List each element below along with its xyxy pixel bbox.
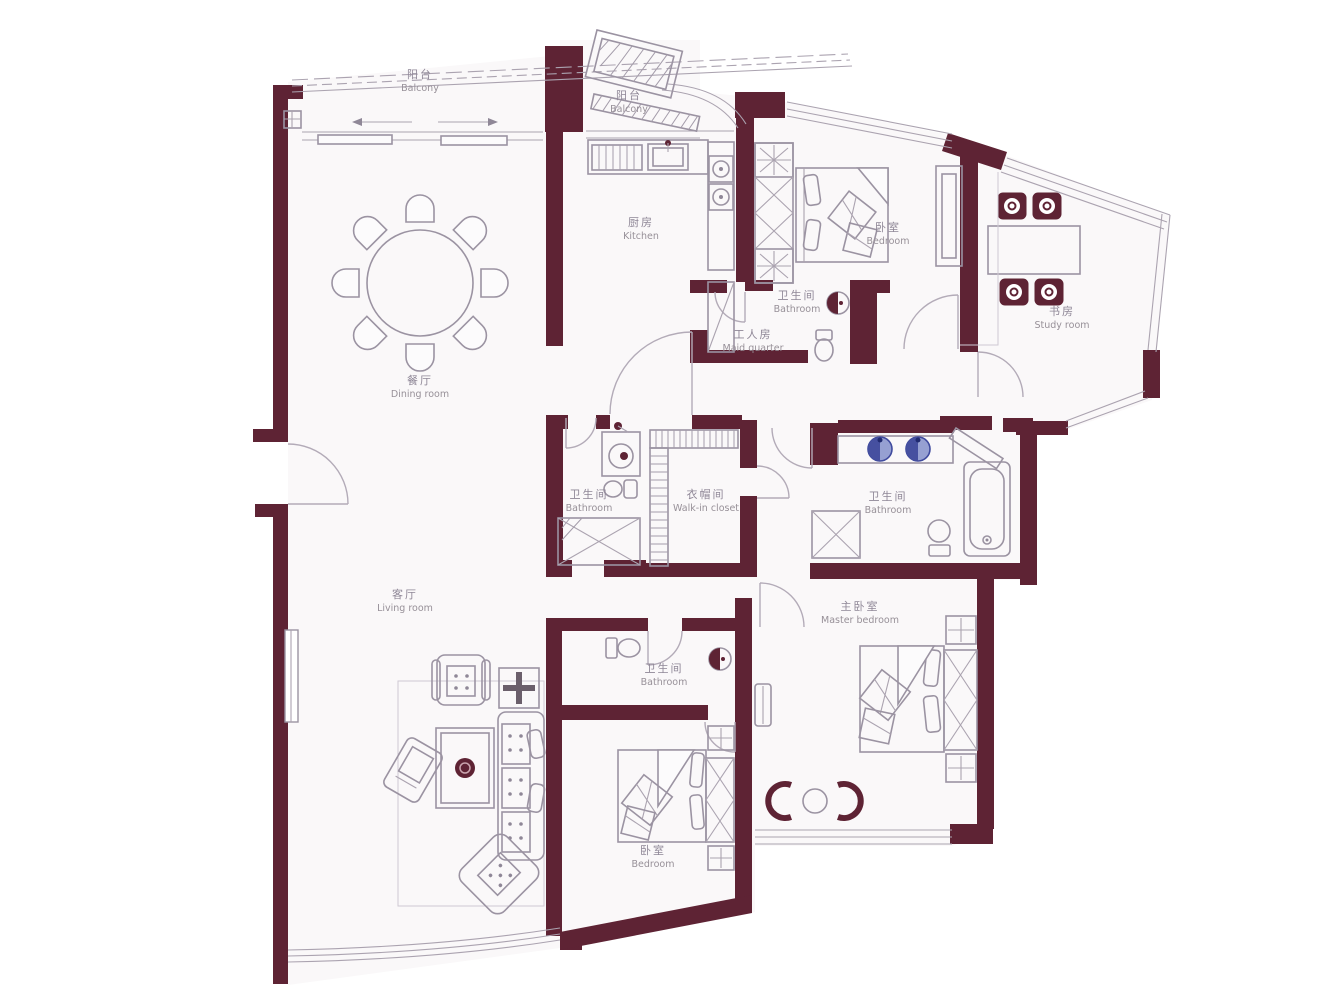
room-label-bathroom-small: 卫生间Bathroom [641, 661, 688, 688]
floor-plan: 阳台Balcony阳台Balcony厨房Kitchen卧室Bedroom书房St… [0, 0, 1333, 1000]
room-label-bathroom-master: 卫生间Bathroom [865, 489, 912, 516]
room-label-bathroom-middle: 卫生间Bathroom [566, 487, 613, 514]
floor-plan-drawing: 阳台Balcony阳台Balcony厨房Kitchen卧室Bedroom书房St… [0, 0, 1333, 1000]
sink-master-1 [868, 437, 892, 461]
sink-master-2 [906, 437, 930, 461]
room-label-bathroom-maid: 卫生间Bathroom [774, 288, 821, 315]
